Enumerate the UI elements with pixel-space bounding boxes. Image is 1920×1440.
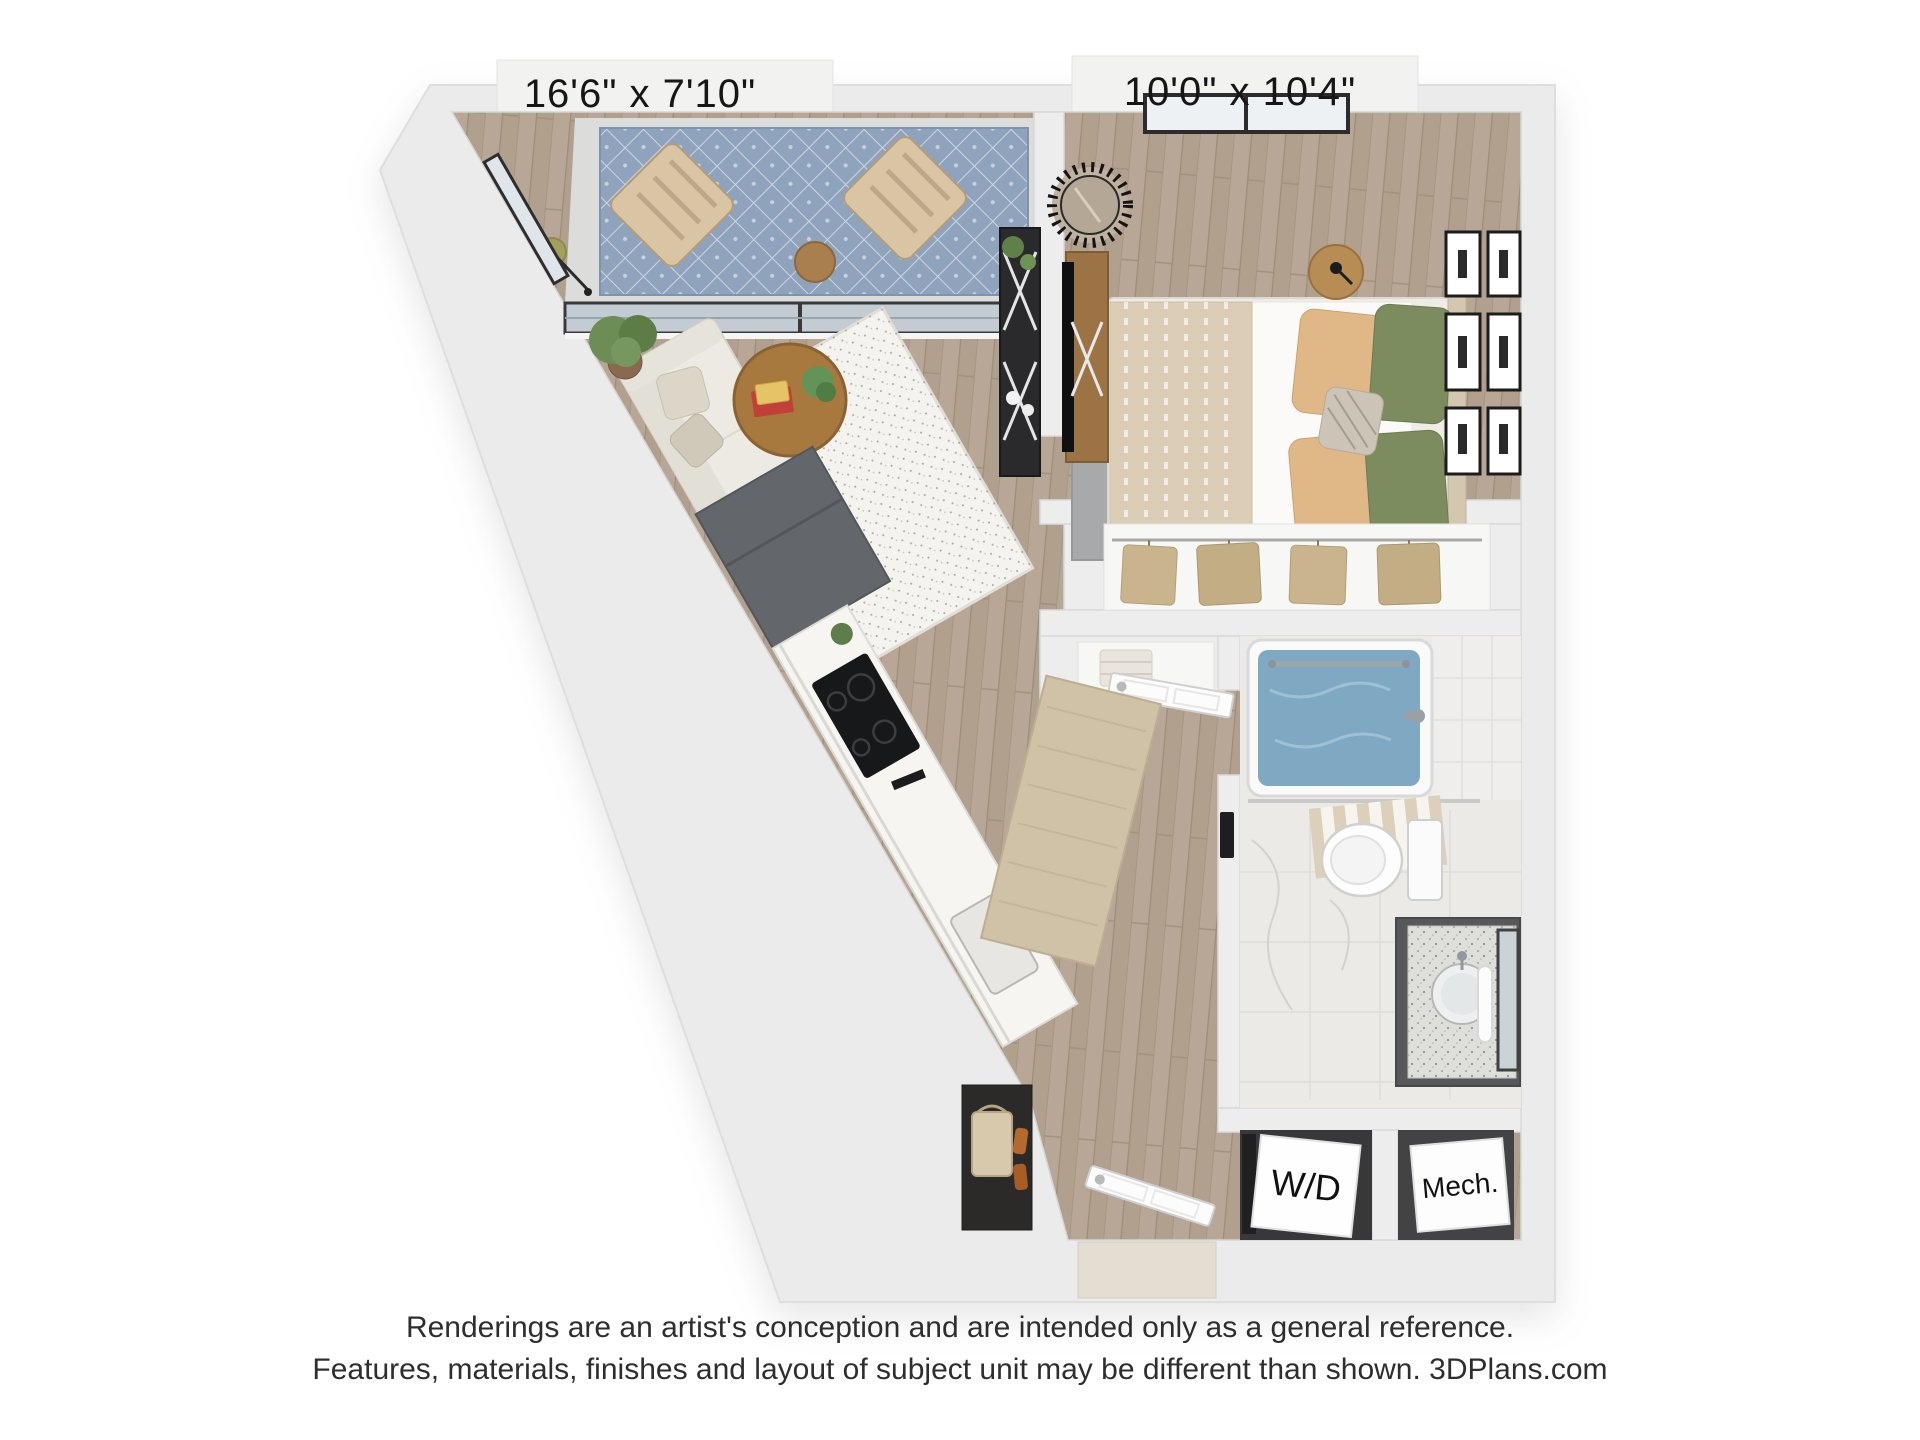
floorplan-rendering: W/D Mech. [0, 0, 1920, 1440]
shelf-plant [1002, 236, 1024, 258]
vanity-sconce [1478, 966, 1492, 1042]
disclaimer-line-1: Renderings are an artist's conception an… [0, 1310, 1920, 1346]
vanity-mirror [1498, 930, 1518, 1070]
floorplan-page: W/D Mech. 16'6" x 7'10" 10'0" x 10'4" Re… [0, 0, 1920, 1440]
entry-threshold [1078, 1242, 1216, 1298]
shower-tile-wall [1432, 636, 1521, 800]
mech-label: Mech. [1421, 1167, 1500, 1205]
bathroom [1220, 636, 1521, 1108]
disclaimer: Renderings are an artist's conception an… [0, 1310, 1920, 1394]
wall-closet-bottom [1040, 610, 1521, 636]
round-mirror [1052, 167, 1128, 243]
bath-water [1258, 650, 1420, 786]
wall-wd-mech-divider [1372, 1130, 1398, 1240]
balcony [565, 118, 1034, 303]
vanity-sink [1396, 918, 1520, 1086]
mech-unit: Mech. [1410, 1138, 1509, 1232]
bookshelf [1000, 228, 1040, 476]
tv-console [1062, 252, 1108, 462]
dimension-label-bedroom: 10'0" x 10'4" [1124, 72, 1356, 112]
wd-label: W/D [1269, 1161, 1343, 1209]
shelf-plant [1020, 254, 1036, 270]
wall-bath-left-upper [1218, 636, 1240, 690]
shoe-closet [962, 1085, 1032, 1230]
wd-unit: W/D [1251, 1135, 1360, 1237]
garment [1121, 545, 1178, 606]
shelf-vase [1006, 391, 1020, 405]
book [755, 381, 789, 405]
bedroom-closet [1104, 524, 1490, 610]
bed-throw-blanket [1110, 302, 1252, 554]
dimension-label-living: 16'6" x 7'10" [524, 74, 756, 114]
patio-side-table [795, 242, 835, 282]
wall-closet-right [1490, 524, 1521, 610]
tote-bag [972, 1112, 1012, 1176]
garment [1196, 542, 1261, 605]
bathtub [1248, 640, 1432, 796]
wall-panel [1220, 812, 1234, 858]
disclaimer-line-2: Features, materials, finishes and layout… [0, 1352, 1920, 1388]
garment [1377, 543, 1441, 605]
shoes [1013, 1163, 1029, 1190]
nightstand [1309, 245, 1363, 299]
shelf-vase [1022, 404, 1034, 416]
toilet [1322, 820, 1442, 900]
tv-screen [1062, 262, 1074, 452]
coffee-table [734, 344, 846, 456]
garment [1289, 545, 1347, 605]
wall-bath-bottom [1218, 1108, 1521, 1132]
